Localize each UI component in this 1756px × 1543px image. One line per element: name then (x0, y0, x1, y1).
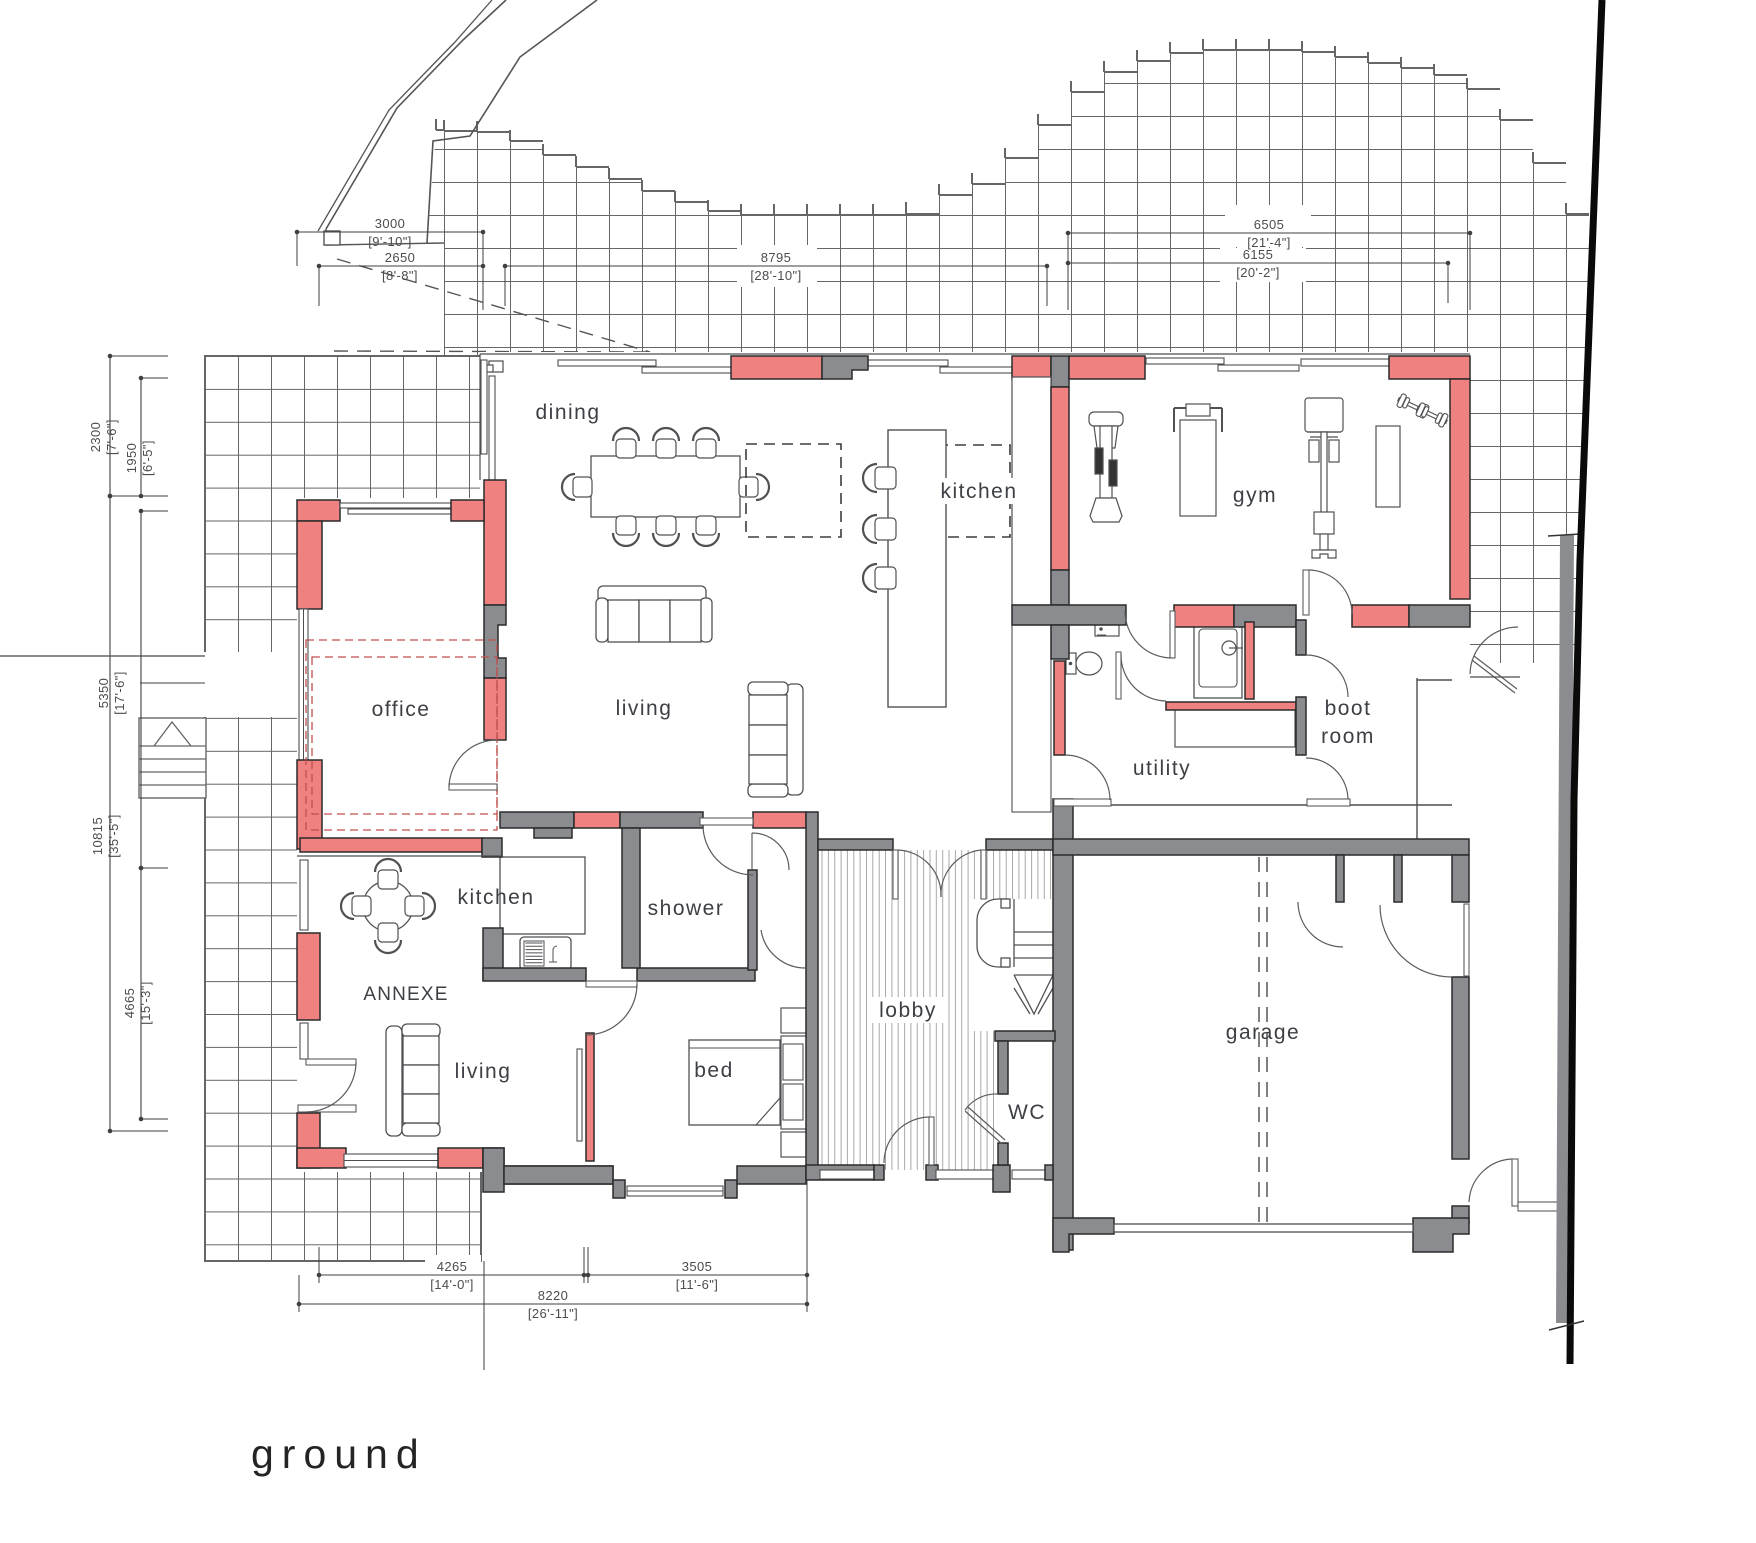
svg-text:room: room (1321, 725, 1375, 748)
svg-text:4665: 4665 (122, 988, 137, 1019)
svg-text:kitchen: kitchen (940, 480, 1017, 503)
svg-text:4265: 4265 (437, 1259, 468, 1274)
svg-text:living: living (455, 1060, 512, 1083)
svg-text:ground: ground (251, 1431, 427, 1477)
svg-text:1950: 1950 (124, 443, 139, 474)
svg-text:[26'-11"]: [26'-11"] (528, 1306, 578, 1321)
svg-text:6505: 6505 (1254, 217, 1285, 232)
svg-text:5350: 5350 (96, 678, 111, 709)
svg-text:[6'-5"]: [6'-5"] (140, 440, 155, 476)
svg-text:[35'-5"]: [35'-5"] (106, 814, 121, 858)
svg-text:10815: 10815 (90, 817, 105, 855)
svg-text:[8'-8"]: [8'-8"] (382, 268, 418, 283)
svg-text:lobby: lobby (879, 999, 937, 1022)
svg-text:8220: 8220 (538, 1288, 569, 1303)
svg-text:6155: 6155 (1243, 247, 1274, 262)
svg-text:8795: 8795 (761, 250, 792, 265)
svg-text:[9'-10"]: [9'-10"] (368, 234, 412, 249)
svg-text:garage: garage (1226, 1021, 1300, 1044)
svg-text:bed: bed (694, 1059, 734, 1082)
svg-text:[17'-6"]: [17'-6"] (112, 671, 127, 715)
svg-text:ANNEXE: ANNEXE (363, 984, 448, 1005)
svg-text:[28'-10"]: [28'-10"] (750, 268, 801, 283)
svg-text:3505: 3505 (682, 1259, 713, 1274)
svg-text:kitchen: kitchen (457, 886, 534, 909)
svg-text:[7'-6"]: [7'-6"] (104, 419, 119, 455)
svg-text:[20'-2"]: [20'-2"] (1236, 265, 1280, 280)
svg-text:[14'-0"]: [14'-0"] (430, 1277, 474, 1292)
svg-text:2650: 2650 (385, 250, 416, 265)
svg-text:living: living (616, 697, 673, 720)
svg-text:gym: gym (1233, 484, 1277, 507)
svg-text:2300: 2300 (88, 422, 103, 453)
svg-text:3000: 3000 (375, 216, 406, 231)
svg-text:shower: shower (648, 897, 725, 920)
svg-text:boot: boot (1325, 697, 1372, 720)
svg-text:[11'-6"]: [11'-6"] (676, 1277, 719, 1292)
svg-text:utility: utility (1133, 757, 1191, 780)
svg-text:dining: dining (535, 401, 600, 424)
svg-text:[15'-3"]: [15'-3"] (138, 981, 153, 1025)
svg-text:WC: WC (1008, 1101, 1046, 1124)
svg-text:office: office (372, 698, 431, 721)
